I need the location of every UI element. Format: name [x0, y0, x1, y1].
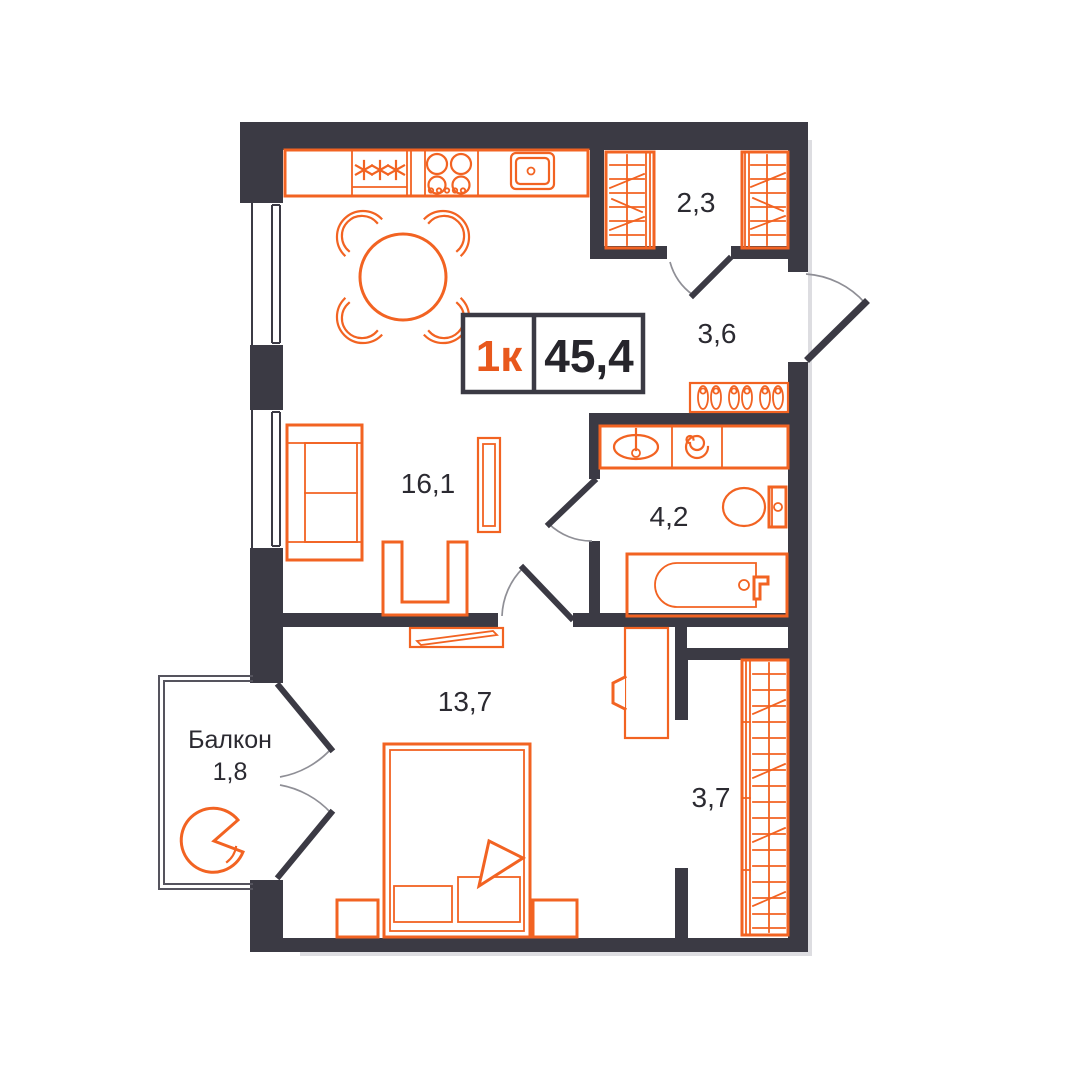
wall-corridor-west-a	[675, 660, 688, 720]
interior-door-icon	[502, 568, 571, 618]
blanket-fold	[479, 841, 523, 886]
balcony-chair-icon	[181, 808, 243, 872]
sofa-icon	[287, 425, 362, 560]
kitchen-sink-icon	[511, 153, 554, 189]
bedroom-furniture	[337, 628, 668, 937]
wall-kitchen-closet	[590, 150, 604, 259]
floor-plan: 1к 45,4 2,3 3,6 4,2 16,1 13,7 3,7 Балкон…	[0, 0, 1080, 1080]
interior-door-icon	[549, 481, 594, 541]
nightstand-icon	[533, 900, 577, 937]
wall-tv-icon	[410, 628, 503, 647]
living-room-furniture	[287, 425, 500, 615]
wall-bathroom-north	[589, 413, 788, 425]
bathroom-fixtures	[600, 426, 788, 616]
wall-top	[250, 122, 808, 150]
desk-icon	[613, 628, 668, 738]
wall-bottom	[250, 938, 808, 952]
wall-left-pier	[250, 345, 283, 410]
badge-total-area: 45,4	[544, 330, 634, 382]
area-badge: 1к 45,4	[463, 315, 643, 392]
washbasin-icon	[614, 429, 658, 459]
dining-table-icon	[360, 234, 446, 320]
toilet-icon	[723, 487, 786, 527]
dining-set	[337, 211, 469, 343]
wall-left-b	[250, 548, 283, 683]
balcony-door-icon	[279, 686, 331, 876]
vanity-counter	[600, 426, 788, 468]
wardrobe-icon	[606, 152, 654, 248]
label-wardrobe-top-area: 2,3	[677, 187, 716, 218]
label-living-area: 16,1	[401, 468, 456, 499]
interior-door-icon	[670, 259, 729, 295]
tv-icon	[478, 438, 500, 532]
stove-icon	[427, 154, 471, 194]
bath-tap	[754, 577, 768, 599]
badge-room-count: 1к	[476, 332, 523, 381]
desk-chair-icon	[613, 677, 625, 709]
double-bed-icon	[384, 744, 530, 937]
bathtub-icon	[627, 554, 787, 616]
wall-right-b	[788, 362, 808, 952]
label-corridor-area: 3,7	[692, 782, 731, 813]
wall-corridor-north	[675, 648, 788, 660]
nightstand-icon	[337, 900, 378, 937]
wall-left-a	[250, 150, 283, 203]
fridge-icon	[353, 161, 406, 187]
label-balcony-area: 1,8	[213, 758, 248, 786]
wall-right-a	[788, 122, 808, 272]
pillow	[394, 886, 452, 922]
wall-duct-connector	[675, 627, 687, 648]
label-balcony-name: Балкон	[188, 726, 272, 754]
floor-plan-page: 1к 45,4 2,3 3,6 4,2 16,1 13,7 3,7 Балкон…	[0, 0, 1080, 1080]
wardrobe-icon	[742, 152, 788, 248]
wardrobe-icon	[742, 660, 788, 935]
washing-machine-icon	[686, 436, 708, 458]
kitchen	[285, 150, 588, 196]
wall-bathroom-west-a	[589, 413, 600, 479]
window-icon	[252, 410, 280, 548]
wall-top-left-step	[240, 122, 250, 203]
entry-door-icon	[806, 274, 865, 358]
armchair-icon	[383, 542, 467, 615]
label-hallway-area: 3,6	[698, 318, 737, 349]
pillow	[458, 877, 520, 922]
label-bedroom-area: 13,7	[438, 686, 493, 717]
label-bathroom-area: 4,2	[650, 501, 689, 532]
shoe-rack-icon	[690, 383, 788, 412]
window-icon	[252, 203, 280, 345]
wall-corridor-west-b	[675, 868, 688, 938]
room-labels: 2,3 3,6 4,2 16,1 13,7 3,7 Балкон 1,8	[188, 187, 736, 813]
